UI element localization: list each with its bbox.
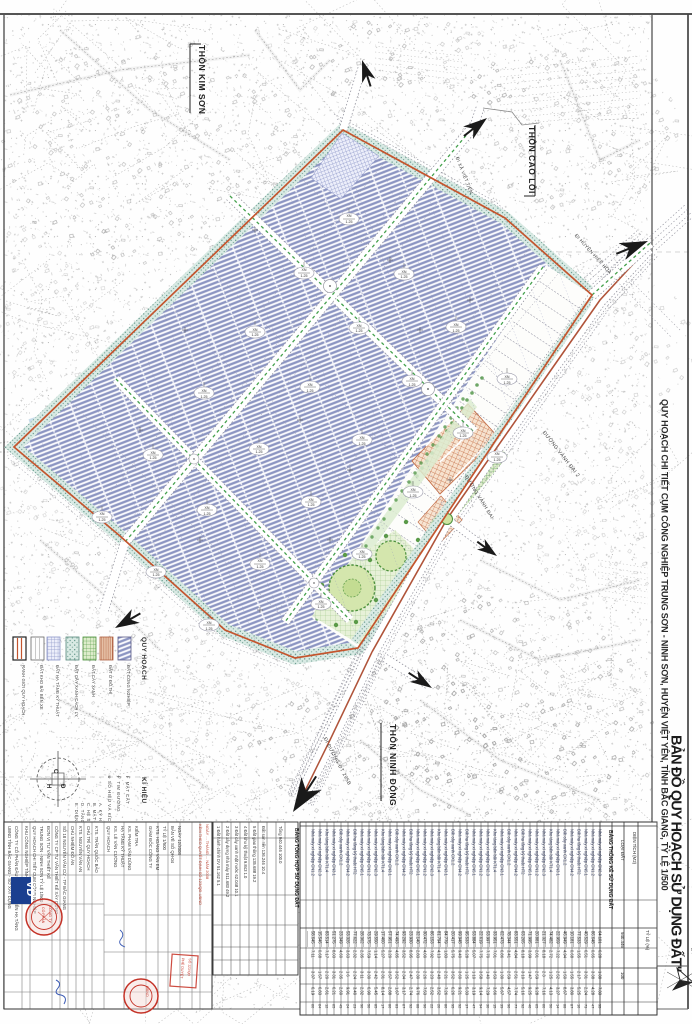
svg-text:0.65: 0.65 — [591, 950, 596, 959]
svg-text:58.645: 58.645 — [311, 931, 316, 944]
svg-text:Kho tàng bến bãi KT1.4: Kho tàng bến bãi KT1.4 — [549, 829, 554, 873]
svg-text:40.529: 40.529 — [584, 931, 589, 944]
svg-text:XN: XN — [495, 452, 500, 456]
svg-text:THÔN KIM SƠN: THÔN KIM SƠN — [197, 45, 208, 114]
svg-text:23.349: 23.349 — [339, 931, 344, 944]
svg-text:DIỆN TÍCH (M2): DIỆN TÍCH (M2) — [632, 832, 637, 865]
svg-text:96: 96 — [423, 1004, 428, 1008]
svg-text:Đất san nền 136.246 10.4: Đất san nền 136.246 10.4 — [261, 826, 266, 875]
svg-text:TỶ LỆ (%): TỶ LỆ (%) — [645, 930, 650, 951]
svg-text:3.52: 3.52 — [402, 950, 407, 959]
svg-text:8.18: 8.18 — [542, 950, 547, 959]
svg-text:1 10: 1 10 — [472, 971, 477, 980]
svg-text:4.84: 4.84 — [514, 950, 519, 959]
svg-text:Đất cây xanh CX1.2: Đất cây xanh CX1.2 — [507, 829, 512, 866]
svg-text:85: 85 — [374, 1004, 379, 1008]
svg-text:2 51: 2 51 — [514, 971, 519, 980]
svg-text:Nhà máy xí nghiệp CN1.2: Nhà máy xí nghiệp CN1.2 — [367, 829, 372, 877]
svg-text:1 40: 1 40 — [486, 971, 491, 980]
svg-text:32.140: 32.140 — [416, 931, 421, 944]
svg-text:7.92: 7.92 — [430, 950, 435, 959]
svg-text:1.25: 1.25 — [307, 389, 314, 393]
svg-text:XN: XN — [454, 323, 459, 327]
svg-text:4.85: 4.85 — [395, 950, 400, 959]
svg-text:3.19: 3.19 — [472, 987, 477, 996]
svg-text:78.344: 78.344 — [507, 931, 512, 944]
svg-text:53.884: 53.884 — [472, 931, 477, 944]
svg-text:Nhà máy xí nghiệp CN2.3: Nhà máy xí nghiệp CN2.3 — [598, 829, 603, 877]
svg-text:XN: XN — [411, 488, 416, 492]
svg-text:XN: XN — [402, 270, 407, 274]
svg-text:Nhà máy xí nghiệp CN2.3: Nhà máy xí nghiệp CN2.3 — [318, 829, 323, 877]
svg-text:77.533: 77.533 — [577, 931, 582, 944]
svg-text:30.472: 30.472 — [423, 931, 428, 944]
svg-text:51.275: 51.275 — [332, 931, 337, 944]
svg-text:KÈM THEO QUYẾT ĐỊNH SỐ 123/QĐ-: KÈM THEO QUYẾT ĐỊNH SỐ 123/QĐ-UBND — [198, 824, 203, 905]
svg-text:3 31: 3 31 — [332, 971, 337, 980]
svg-text:29.550: 29.550 — [374, 931, 379, 944]
svg-text:100: 100 — [620, 972, 625, 980]
svg-text:7.11: 7.11 — [311, 950, 316, 958]
svg-text:92: 92 — [409, 1004, 414, 1008]
svg-text:Nhà máy xí nghiệp CN5.1: Nhà máy xí nghiệp CN5.1 — [472, 829, 477, 877]
svg-text:2.35: 2.35 — [360, 950, 365, 959]
svg-text:1.83: 1.83 — [444, 950, 449, 959]
svg-text:3 10: 3 10 — [521, 971, 526, 980]
svg-text:3 52: 3 52 — [395, 971, 400, 980]
svg-text:93.292: 93.292 — [402, 931, 407, 944]
svg-text:ĐẤT CÂY XANH: ĐẤT CÂY XANH — [91, 665, 96, 697]
svg-text:12: 12 — [325, 1004, 330, 1008]
svg-text:Đất hạ tầng kỹ thuật HT2: Đất hạ tầng kỹ thuật HT2 — [521, 829, 526, 875]
svg-text:5.67: 5.67 — [500, 987, 505, 996]
svg-text:XN: XN — [253, 328, 258, 332]
svg-text:86: 86 — [444, 1004, 449, 1008]
svg-text:UBND: UBND — [145, 986, 149, 997]
svg-text:2.52: 2.52 — [430, 987, 435, 996]
svg-text:2 17: 2 17 — [577, 971, 582, 980]
svg-text:2 59: 2 59 — [535, 971, 540, 980]
svg-text:NGÀY 12/2008: NGÀY 12/2008 — [177, 826, 182, 855]
svg-text:1.25: 1.25 — [153, 573, 160, 577]
svg-text:RANH GIỚI QUY HOẠCH: RANH GIỚI QUY HOẠCH — [21, 665, 26, 716]
svg-text:95: 95 — [598, 1004, 603, 1008]
svg-text:GIÁM ĐỐC CÔNG TY: GIÁM ĐỐC CÔNG TY — [148, 826, 153, 869]
svg-text:4.60: 4.60 — [339, 950, 344, 959]
svg-text:83.514: 83.514 — [325, 931, 330, 944]
svg-text:XN: XN — [360, 436, 365, 440]
svg-text:3.80: 3.80 — [570, 987, 575, 996]
svg-text:9.40: 9.40 — [458, 950, 463, 959]
svg-text:1 38: 1 38 — [598, 971, 603, 980]
svg-text:3 11: 3 11 — [360, 971, 365, 979]
svg-text:3 57: 3 57 — [388, 971, 393, 980]
svg-text:28.362: 28.362 — [360, 931, 365, 944]
svg-text:7.16: 7.16 — [542, 987, 547, 996]
svg-text:2 42: 2 42 — [374, 971, 379, 980]
svg-text:71.995: 71.995 — [528, 931, 533, 944]
svg-text:Tổng 940.446 100.0: Tổng 940.446 100.0 — [278, 826, 283, 864]
svg-text:Nhà máy xí nghiệp CN5.1: Nhà máy xí nghiệp CN5.1 — [360, 829, 365, 877]
svg-text:2 59: 2 59 — [507, 971, 512, 980]
svg-text:7.01: 7.01 — [493, 950, 498, 959]
svg-text:1.25: 1.25 — [359, 555, 366, 559]
svg-text:3 58: 3 58 — [479, 971, 484, 980]
svg-text:ĐẤT CÔNG NGHIỆP: ĐẤT CÔNG NGHIỆP — [126, 665, 131, 706]
svg-text:2 26: 2 26 — [423, 971, 428, 980]
svg-text:8.67: 8.67 — [563, 987, 568, 996]
svg-text:7.59: 7.59 — [367, 950, 372, 959]
svg-text:LOẠI ĐẤT: LOẠI ĐẤT — [620, 840, 626, 861]
svg-text:46: 46 — [528, 1004, 533, 1008]
svg-text:4.00: 4.00 — [423, 950, 428, 959]
svg-text:XN: XN — [319, 600, 324, 604]
svg-text:Đất cây xanh CX1.2: Đất cây xanh CX1.2 — [563, 829, 568, 866]
svg-text:84.779: 84.779 — [444, 931, 449, 944]
svg-text:4.13: 4.13 — [437, 950, 442, 959]
svg-text:6.19: 6.19 — [311, 987, 316, 996]
svg-text:2.83: 2.83 — [416, 950, 421, 959]
svg-text:73: 73 — [584, 1004, 589, 1008]
svg-text:XN: XN — [154, 568, 159, 572]
svg-text:2.88: 2.88 — [388, 987, 393, 996]
svg-text:1.67: 1.67 — [395, 987, 400, 996]
svg-text:THÔN CAO LỖI: THÔN CAO LỖI — [527, 126, 538, 194]
svg-text:5.27: 5.27 — [381, 950, 386, 959]
svg-text:1.25: 1.25 — [318, 605, 325, 609]
svg-text:2 47: 2 47 — [409, 971, 414, 980]
svg-text:Nhà máy xí nghiệp CN1.2: Nhà máy xí nghiệp CN1.2 — [535, 829, 540, 877]
svg-text:3.66: 3.66 — [493, 987, 498, 996]
svg-text:XN: XN — [100, 512, 105, 516]
svg-text:XN: XN — [347, 214, 352, 218]
svg-text:Nhà máy xí nghiệp CN3.1: Nhà máy xí nghiệp CN3.1 — [444, 829, 449, 877]
svg-text:9.91: 9.91 — [346, 987, 351, 996]
svg-text:47: 47 — [472, 1004, 477, 1008]
svg-text:6.86: 6.86 — [500, 950, 505, 959]
svg-text:Đất cây xanh CX1.2: Đất cây xanh CX1.2 — [395, 829, 400, 866]
svg-text:7.29: 7.29 — [486, 987, 491, 996]
svg-text:Ｆ TIM ĐƯỜNG: Ｆ TIM ĐƯỜNG — [116, 775, 121, 812]
svg-text:Nhà máy xí nghiệp CN2.3: Nhà máy xí nghiệp CN2.3 — [486, 829, 491, 877]
svg-text:THÔN NINH ĐỘNG: THÔN NINH ĐỘNG — [388, 724, 399, 806]
svg-text:CHỦ TRÌ QUY HOẠCH: CHỦ TRÌ QUY HOẠCH — [86, 826, 91, 871]
svg-text:1.25: 1.25 — [301, 274, 308, 278]
svg-text:15.546: 15.546 — [318, 931, 323, 944]
svg-text:6.90: 6.90 — [367, 987, 372, 996]
svg-text:Nhà máy xí nghiệp CN1.2: Nhà máy xí nghiệp CN1.2 — [591, 829, 596, 877]
svg-text:1 Đất hành chính DV 51.162: 1 Đất hành chính DV 51.162 5.1 — [216, 826, 221, 887]
svg-text:HẠ TẦNG KỸ THUẬT: HẠ TẦNG KỸ THUẬT — [120, 826, 125, 868]
svg-text:2.61: 2.61 — [325, 987, 330, 996]
svg-text:1.14: 1.14 — [374, 950, 379, 959]
svg-text:TỶ LỆ 1/500: TỶ LỆ 1/500 — [162, 826, 167, 850]
svg-text:BẢNG THỐNG KÊ SỬ DỤNG ĐẤT: BẢNG THỐNG KÊ SỬ DỤNG ĐẤT — [607, 830, 615, 909]
svg-text:6.83: 6.83 — [318, 987, 323, 996]
svg-text:1.25: 1.25 — [201, 395, 208, 399]
svg-text:1.25: 1.25 — [356, 329, 363, 333]
svg-text:SỐ 18 NGUYỄN VĂN CỪ - TP BẮC G: SỐ 18 NGUYỄN VĂN CỪ - TP BẮC GIANG — [62, 826, 67, 911]
svg-text:67: 67 — [402, 1004, 407, 1008]
svg-text:22.959: 22.959 — [556, 931, 561, 944]
svg-text:96: 96 — [507, 1004, 512, 1008]
svg-text:2.72: 2.72 — [549, 950, 554, 959]
svg-text:2.74: 2.74 — [409, 987, 414, 996]
svg-text:XN: XN — [505, 375, 510, 379]
svg-text:21.327: 21.327 — [542, 931, 547, 944]
svg-text:1 30: 1 30 — [500, 971, 505, 980]
svg-text:TRUNG SƠN - NINH SƠN TỶ LỆ 1/5: TRUNG SƠN - NINH SƠN TỶ LỆ 1/500 — [39, 826, 44, 903]
svg-text:23: 23 — [353, 1004, 358, 1008]
svg-text:23.930: 23.930 — [409, 931, 414, 944]
svg-text:2.32: 2.32 — [360, 987, 365, 996]
svg-text:Nhà máy xí nghiệp CN2.3: Nhà máy xí nghiệp CN2.3 — [430, 829, 435, 877]
svg-text:1.25: 1.25 — [409, 383, 416, 387]
svg-text:9.21: 9.21 — [458, 987, 463, 996]
svg-text:3 37: 3 37 — [311, 971, 316, 980]
svg-text:3 52: 3 52 — [451, 971, 456, 980]
svg-text:1 25: 1 25 — [549, 971, 554, 980]
svg-text:15: 15 — [493, 1004, 498, 1008]
svg-text:86: 86 — [388, 1004, 393, 1008]
svg-text:3 53: 3 53 — [493, 971, 498, 980]
svg-text:Nhà máy xí nghiệp CN3.1: Nhà máy xí nghiệp CN3.1 — [388, 829, 393, 877]
svg-text:3 60: 3 60 — [458, 971, 463, 980]
svg-text:9.25: 9.25 — [528, 987, 533, 996]
svg-text:Kho tàng bến bãi KT1.4: Kho tàng bến bãi KT1.4 — [493, 829, 498, 873]
svg-text:Nhà máy xí nghiệp CN4.2: Nhà máy xí nghiệp CN4.2 — [514, 829, 519, 877]
svg-text:10.181: 10.181 — [570, 931, 575, 944]
svg-text:5.45: 5.45 — [374, 987, 379, 996]
svg-text:KÍ HIỆU: KÍ HIỆU — [140, 777, 149, 804]
svg-text:2 30: 2 30 — [416, 971, 421, 980]
svg-text:49: 49 — [339, 1004, 344, 1008]
svg-text:7.33: 7.33 — [598, 987, 603, 996]
svg-text:ĐẤT CÂY XANH CÁCH LY: ĐẤT CÂY XANH CÁCH LY — [74, 665, 79, 717]
svg-text:33.951: 33.951 — [493, 931, 498, 944]
svg-text:74.493: 74.493 — [395, 931, 400, 944]
svg-text:QUY HOẠCH: QUY HOẠCH — [140, 637, 147, 680]
svg-text:6.51: 6.51 — [584, 950, 589, 959]
svg-text:8.14: 8.14 — [381, 987, 386, 996]
svg-text:1 6: 1 6 — [346, 971, 351, 977]
svg-text:9.76: 9.76 — [416, 987, 421, 996]
svg-text:8.95: 8.95 — [409, 950, 414, 959]
svg-text:940.446: 940.446 — [620, 932, 625, 948]
svg-text:Đất cây xanh CX1.2: Đất cây xanh CX1.2 — [451, 829, 456, 866]
svg-text:Nhà máy xí nghiệp CN4.2: Nhà máy xí nghiệp CN4.2 — [402, 829, 407, 877]
svg-text:2 20: 2 20 — [325, 971, 330, 980]
svg-text:5 Đất giao thông 135.688 19: 5 Đất giao thông 135.688 19.2 — [252, 826, 257, 883]
svg-text:C: C — [52, 769, 58, 774]
svg-text:3 38: 3 38 — [591, 971, 596, 980]
svg-text:53.997: 53.997 — [486, 931, 491, 944]
svg-text:53.326: 53.326 — [346, 931, 351, 944]
svg-text:Kho tàng bến bãi KT1.4: Kho tàng bến bãi KT1.4 — [325, 829, 330, 873]
svg-text:92: 92 — [458, 1004, 463, 1008]
svg-text:1.55: 1.55 — [577, 950, 582, 959]
svg-text:8.18: 8.18 — [521, 950, 526, 959]
svg-text:1.25: 1.25 — [206, 627, 213, 631]
svg-text:XN: XN — [302, 268, 307, 272]
svg-text:Kho tàng bến bãi KT1.4: Kho tàng bến bãi KT1.4 — [381, 829, 386, 873]
svg-text:3 30: 3 30 — [367, 971, 372, 980]
svg-text:17.460: 17.460 — [381, 931, 386, 944]
svg-text:1.25: 1.25 — [359, 442, 366, 446]
svg-text:1.25: 1.25 — [252, 333, 259, 337]
svg-text:3.20: 3.20 — [388, 950, 393, 959]
svg-text:88: 88 — [563, 1004, 568, 1008]
svg-text:83.551: 83.551 — [514, 931, 519, 944]
svg-text:0.68: 0.68 — [318, 950, 323, 959]
svg-text:3 23: 3 23 — [430, 971, 435, 980]
svg-text:VD: VD — [24, 881, 36, 896]
svg-text:22.619: 22.619 — [479, 931, 484, 944]
svg-text:KS. PHẠM VĂN DŨNG: KS. PHẠM VĂN DŨNG — [127, 826, 132, 871]
svg-text:37: 37 — [465, 1004, 470, 1008]
svg-text:H: H — [45, 784, 51, 788]
svg-text:3.52: 3.52 — [437, 987, 442, 996]
svg-text:57.951: 57.951 — [388, 931, 393, 944]
svg-text:KIỂM TRA: KIỂM TRA — [134, 826, 139, 846]
svg-text:7.53: 7.53 — [423, 987, 428, 996]
svg-text:87: 87 — [570, 1004, 575, 1008]
svg-text:Đất hạ tầng kỹ thuật HT2: Đất hạ tầng kỹ thuật HT2 — [353, 829, 358, 875]
svg-text:1.25: 1.25 — [346, 220, 353, 224]
svg-text:64.101: 64.101 — [598, 931, 603, 944]
svg-text:3 31: 3 31 — [584, 971, 589, 980]
svg-text:KTS. NGUYỄN VĂN AN: KTS. NGUYỄN VĂN AN — [78, 826, 83, 872]
svg-text:Kho tàng bến bãi KT1.4: Kho tàng bến bãi KT1.4 — [437, 829, 442, 873]
svg-text:1.25: 1.25 — [204, 512, 211, 516]
svg-text:Ｆ MẶT CẮT: Ｆ MẶT CẮT — [125, 775, 130, 804]
svg-text:2.24: 2.24 — [584, 987, 589, 996]
svg-text:2.60: 2.60 — [339, 987, 344, 996]
svg-text:46.949: 46.949 — [563, 931, 568, 944]
svg-text:4.13: 4.13 — [549, 987, 554, 996]
svg-text:1.25: 1.25 — [150, 456, 157, 460]
svg-text:63.265: 63.265 — [521, 931, 526, 944]
svg-text:Đất hạ tầng kỹ thuật HT2: Đất hạ tầng kỹ thuật HT2 — [409, 829, 414, 875]
svg-text:Nhà máy xí nghiệp CN4.2: Nhà máy xí nghiệp CN4.2 — [458, 829, 463, 877]
svg-text:83: 83 — [395, 1004, 400, 1008]
svg-text:4.28: 4.28 — [591, 987, 596, 996]
svg-text:Nhà máy xí nghiệp CN4.2: Nhà máy xí nghiệp CN4.2 — [570, 829, 575, 877]
svg-text:73.575: 73.575 — [367, 931, 372, 944]
svg-text:Nhà máy xí nghiệp CN3.1: Nhà máy xí nghiệp CN3.1 — [332, 829, 337, 877]
svg-text:1.25: 1.25 — [504, 381, 511, 385]
svg-text:Nhà máy xí nghiệp CN2.3: Nhà máy xí nghiệp CN2.3 — [542, 829, 547, 877]
svg-text:XN: XN — [357, 324, 362, 328]
svg-text:KTS. TRẦN QUỐC BẢO: KTS. TRẦN QUỐC BẢO — [94, 826, 99, 873]
svg-text:XN: XN — [207, 621, 212, 625]
svg-text:4.57: 4.57 — [507, 987, 512, 996]
svg-text:2 34: 2 34 — [402, 971, 407, 980]
svg-text:1.25: 1.25 — [410, 494, 417, 498]
svg-text:ĐẤT KHO BÃI BẾN XE: ĐẤT KHO BÃI BẾN XE — [39, 665, 44, 710]
svg-text:7.22: 7.22 — [556, 950, 561, 959]
svg-text:ĐẤT Ở ĐÔ THỊ: ĐẤT Ở ĐÔ THỊ — [108, 665, 113, 695]
svg-text:86.153: 86.153 — [430, 931, 435, 944]
svg-text:39: 39 — [500, 1004, 505, 1008]
svg-text:XN: XN — [410, 377, 415, 381]
svg-text:62.473: 62.473 — [500, 931, 505, 944]
svg-text:3.17: 3.17 — [402, 987, 407, 996]
svg-text:6.21: 6.21 — [332, 987, 337, 996]
svg-text:1.25: 1.25 — [460, 434, 467, 438]
svg-text:77.622: 77.622 — [353, 931, 358, 944]
svg-text:Đ: Đ — [59, 784, 65, 789]
svg-text:77: 77 — [514, 1004, 519, 1008]
svg-text:Nhà máy xí nghiệp CN1.2: Nhà máy xí nghiệp CN1.2 — [479, 829, 484, 877]
svg-text:65: 65 — [535, 1004, 540, 1008]
svg-text:5.75: 5.75 — [451, 950, 456, 959]
svg-text:2 31: 2 31 — [381, 971, 386, 980]
svg-text:5.28: 5.28 — [465, 950, 470, 959]
svg-text:20.417: 20.417 — [451, 931, 456, 944]
svg-text:Nhà máy xí nghiệp CN3.1: Nhà máy xí nghiệp CN3.1 — [556, 829, 561, 877]
svg-text:6.28: 6.28 — [598, 950, 603, 959]
svg-text:Nhà máy xí nghiệp CN5.1: Nhà máy xí nghiệp CN5.1 — [416, 829, 421, 877]
svg-text:6.26: 6.26 — [451, 987, 456, 996]
svg-text:1.25: 1.25 — [401, 275, 408, 279]
svg-text:XN: XN — [308, 383, 313, 387]
svg-text:1.25: 1.25 — [453, 329, 460, 333]
svg-text:1.25: 1.25 — [256, 450, 263, 454]
svg-text:XN: XN — [257, 445, 262, 449]
svg-text:Đất cây xanh CX1.2: Đất cây xanh CX1.2 — [339, 829, 344, 866]
svg-text:1.25: 1.25 — [308, 503, 315, 507]
svg-text:ĐẤT HẠ TẦNG KỸ THUẬT: ĐẤT HẠ TẦNG KỸ THUẬT — [55, 665, 60, 717]
svg-text:BẢN VẼ SỐ QH-04: BẢN VẼ SỐ QH-04 — [170, 826, 175, 864]
svg-text:7.70: 7.70 — [486, 950, 491, 959]
svg-text:99.948: 99.948 — [458, 931, 463, 944]
svg-text:Nhà máy xí nghiệp CN5.1: Nhà máy xí nghiệp CN5.1 — [528, 829, 533, 877]
svg-text:95: 95 — [451, 1004, 456, 1008]
svg-text:XN: XN — [258, 559, 263, 563]
svg-text:2 48: 2 48 — [437, 971, 442, 980]
svg-text:XN: XN — [205, 506, 210, 510]
svg-text:BẢNG TỔNG HỢP SỬ DỤNG ĐẤT: BẢNG TỔNG HỢP SỬ DỤNG ĐẤT — [293, 828, 300, 908]
svg-text:1 50: 1 50 — [563, 971, 568, 980]
svg-text:KS. LÊ VĂN CƯỜNG: KS. LÊ VĂN CƯỜNG — [113, 826, 118, 868]
svg-text:16: 16 — [577, 1004, 582, 1008]
svg-text:1.25: 1.25 — [99, 518, 106, 522]
svg-text:BẢN ĐỒ QUY HOẠCH SỬ DỤNG ĐẤT": BẢN ĐỒ QUY HOẠCH SỬ DỤNG ĐẤT" — [668, 735, 686, 972]
svg-text:NGÀY ... THÁNG ... NĂM 2008: NGÀY ... THÁNG ... NĂM 2008 — [205, 824, 210, 880]
svg-text:1 47: 1 47 — [528, 971, 533, 980]
svg-text:4.94: 4.94 — [563, 950, 568, 959]
svg-text:1 25: 1 25 — [465, 971, 470, 980]
svg-text:5.16: 5.16 — [521, 987, 526, 996]
svg-text:2.32: 2.32 — [353, 950, 358, 959]
svg-text:1.25: 1.25 — [494, 458, 501, 462]
svg-text:Nhà máy xí nghiệp CN1.2: Nhà máy xí nghiệp CN1.2 — [423, 829, 428, 877]
svg-text:92: 92 — [521, 1004, 526, 1008]
svg-text:47: 47 — [591, 1004, 596, 1008]
svg-text:1 57: 1 57 — [318, 971, 323, 980]
svg-text:4 Đất khu kỹ thuật 9.843: 4 Đất khu kỹ thuật 9.843 1.0 — [243, 826, 248, 879]
svg-text:2 24: 2 24 — [353, 971, 358, 980]
svg-text:95.533: 95.533 — [465, 931, 470, 944]
svg-text:CHỦ NHIỆM ĐỒ ÁN: CHỦ NHIỆM ĐỒ ÁN — [70, 826, 75, 865]
svg-text:3.63: 3.63 — [346, 950, 351, 959]
svg-text:5.07: 5.07 — [472, 950, 477, 959]
svg-text:86.648: 86.648 — [591, 931, 596, 944]
svg-text:3.40: 3.40 — [353, 987, 358, 996]
svg-text:5.33: 5.33 — [465, 987, 470, 996]
svg-text:XN: XN — [309, 498, 314, 502]
